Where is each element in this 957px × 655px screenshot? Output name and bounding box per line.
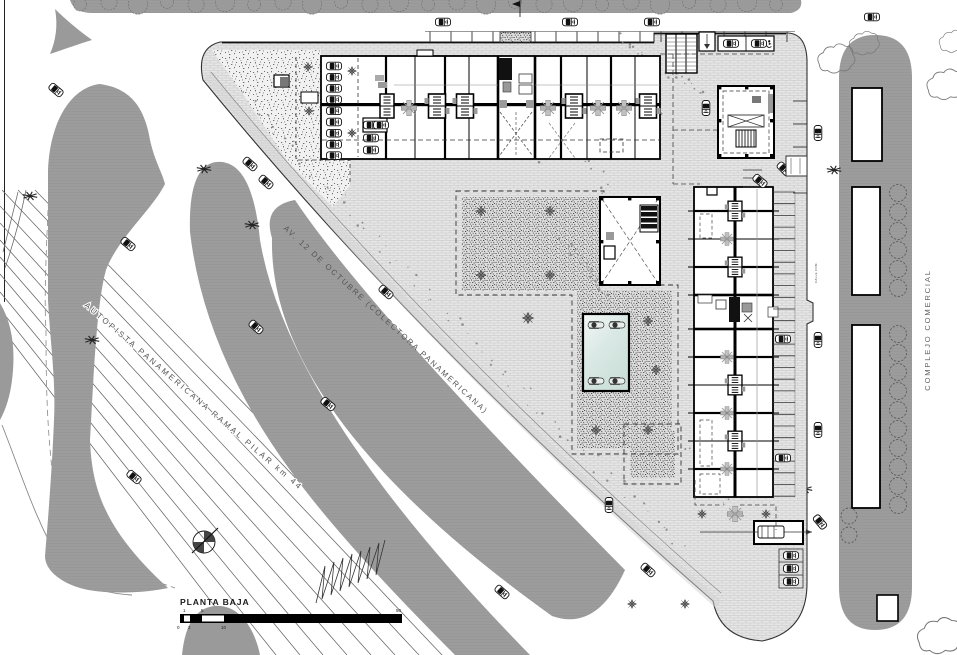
svg-text:50: 50 [396,608,402,613]
svg-text:CALLE COM.: CALLE COM. [814,262,818,283]
svg-text:10: 10 [221,625,227,630]
svg-text:COMPLEJO COMERCIAL: COMPLEJO COMERCIAL [923,269,932,390]
svg-text:PLANTA BAJA: PLANTA BAJA [180,597,250,607]
